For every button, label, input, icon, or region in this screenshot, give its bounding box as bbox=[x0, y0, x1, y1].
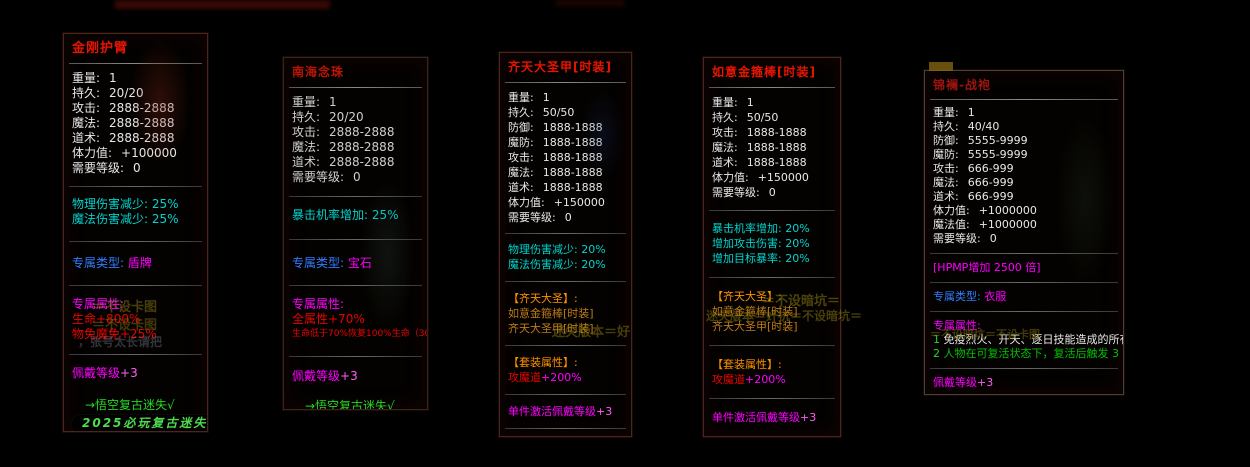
stat-value: +100000 bbox=[121, 146, 177, 160]
divider bbox=[505, 394, 626, 395]
divider bbox=[709, 87, 835, 88]
attr-label: 专属类型: bbox=[72, 256, 128, 270]
attr-value: 人物在可复活状态下，复活后触发 3 秒无敌 bbox=[944, 347, 1125, 360]
background-artifact bbox=[555, 0, 625, 6]
divider bbox=[289, 356, 422, 357]
signature-line: →悟空复古迷失√ bbox=[72, 398, 199, 413]
item-tooltip-ruyi-jingubang: 如意金箍棒[时装]重量:1持久:50/50攻击:1888-1888魔法:1888… bbox=[703, 57, 841, 437]
spacer bbox=[712, 349, 832, 357]
spacer bbox=[508, 385, 623, 391]
spacer bbox=[292, 342, 419, 353]
attr-value: +3 bbox=[977, 376, 993, 389]
item-title: 金刚护臂 bbox=[72, 39, 199, 60]
item-tooltip-nanhai-nianzhu: 南海念珠重量:1持久:20/20攻击:2888-2888魔法:2888-2888… bbox=[283, 57, 428, 410]
stat-value: +150000 bbox=[758, 171, 809, 184]
attr-label: 攻魔道 bbox=[508, 371, 541, 384]
stat-label: 魔法值: bbox=[933, 218, 970, 231]
divider bbox=[69, 241, 202, 242]
divider bbox=[709, 398, 835, 399]
stat-label: 持久: bbox=[933, 120, 959, 133]
set-name-text: 【齐天大圣】: bbox=[508, 292, 578, 305]
spacer bbox=[72, 227, 199, 238]
item-title-text: 齐天大圣甲[时装] bbox=[508, 60, 612, 74]
attr-row: 单件激活佩戴等级+3 bbox=[508, 404, 623, 419]
stat-row: 道术:2888-2888 bbox=[72, 131, 199, 146]
attr-row: 专属类型: 宝石 bbox=[292, 256, 419, 271]
attr-label: 佩戴等级 bbox=[72, 366, 120, 380]
divider bbox=[930, 311, 1118, 312]
item-tooltip-jingang-hubi: 金刚护臂重量:1持久:20/20攻击:2888-2888魔法:2888-2888… bbox=[63, 33, 208, 432]
divider bbox=[709, 277, 835, 278]
spacer bbox=[292, 271, 419, 282]
attr-value: 盾牌 bbox=[128, 256, 152, 270]
attr-line-text: 生命低于70%恢复100%生命（300秒CD） bbox=[292, 329, 428, 339]
stat-value: 2888-2888 bbox=[329, 155, 394, 169]
attr-label: 佩戴等级 bbox=[292, 369, 340, 383]
spacer bbox=[72, 271, 199, 282]
stat-row: 持久:50/50 bbox=[508, 105, 623, 120]
divider bbox=[505, 82, 626, 83]
attr-row: 2 人物在可复活状态下，复活后触发 3 秒无敌 bbox=[933, 347, 1115, 361]
divider bbox=[930, 282, 1118, 283]
stat-label: 持久: bbox=[508, 106, 534, 119]
stat-row: 需要等级:0 bbox=[933, 232, 1115, 246]
stat-row: 魔法:2888-2888 bbox=[292, 140, 419, 155]
attr-value: +3 bbox=[340, 369, 358, 383]
attr-value: +200% bbox=[541, 371, 582, 384]
spacer bbox=[933, 304, 1115, 308]
stat-row: 需要等级:0 bbox=[292, 170, 419, 185]
stat-label: 道术: bbox=[933, 190, 959, 203]
stat-label: 体力值: bbox=[508, 196, 545, 209]
item-title-text: 如意金箍棒[时装] bbox=[712, 65, 816, 79]
divider bbox=[709, 436, 835, 437]
stat-label: 魔法: bbox=[72, 116, 100, 130]
stat-row: 魔法:1888-1888 bbox=[508, 165, 623, 180]
spacer bbox=[72, 190, 199, 197]
attr-line: 全属性+70% bbox=[292, 312, 419, 327]
stat-value: 1 bbox=[543, 91, 550, 104]
stat-label: 魔防: bbox=[933, 148, 959, 161]
stat-label: 防御: bbox=[508, 121, 534, 134]
item-title: 如意金箍棒[时装] bbox=[712, 63, 832, 84]
set-bonus-header: 【套装属性】: bbox=[712, 357, 832, 372]
attr-line-text: 生命+800% bbox=[72, 312, 140, 326]
stat-row: 持久:20/20 bbox=[292, 110, 419, 125]
stat-row: 重量:1 bbox=[72, 71, 199, 86]
stat-row: 需要等级:0 bbox=[72, 161, 199, 176]
attr-line-text: 物理伤害减少: 20% bbox=[508, 243, 606, 256]
signature-pill: 2025必玩复古迷失 ← bbox=[72, 415, 208, 432]
set-name-text: 【齐天大圣】: bbox=[712, 290, 782, 303]
attr-line-text: 增加目标暴率: 20% bbox=[712, 252, 810, 265]
stat-row: 体力值:+150000 bbox=[712, 170, 832, 185]
stat-label: 体力值: bbox=[712, 171, 749, 184]
spacer bbox=[712, 266, 832, 274]
stat-value: 1888-1888 bbox=[543, 166, 603, 179]
stat-value: 0 bbox=[769, 186, 776, 199]
spacer bbox=[292, 243, 419, 256]
stat-value: 1888-1888 bbox=[543, 136, 603, 149]
divider bbox=[69, 285, 202, 286]
attr-line-text: 魔法伤害减少: 25% bbox=[72, 212, 179, 226]
stat-label: 需要等级: bbox=[712, 186, 760, 199]
spacer bbox=[508, 336, 623, 342]
game-screen: 金刚护臂重量:1持久:20/20攻击:2888-2888魔法:2888-2888… bbox=[0, 0, 1250, 467]
stat-row: 防御:5555-9999 bbox=[933, 134, 1115, 148]
divider bbox=[709, 210, 835, 211]
stat-row: 魔法:2888-2888 bbox=[72, 116, 199, 131]
stat-row: 需要等级:0 bbox=[712, 185, 832, 200]
stat-value: 1 bbox=[747, 96, 754, 109]
stat-value: 1888-1888 bbox=[543, 151, 603, 164]
item-title: 齐天大圣甲[时装] bbox=[508, 58, 623, 79]
stat-label: 重量: bbox=[712, 96, 738, 109]
stat-label: 需要等级: bbox=[72, 161, 124, 175]
stat-row: 需要等级:0 bbox=[508, 210, 623, 225]
attr-row: 攻魔道+200% bbox=[712, 372, 832, 387]
stat-value: 666-999 bbox=[968, 176, 1014, 189]
divider bbox=[505, 428, 626, 429]
spacer bbox=[292, 200, 419, 208]
set-bonus-header-text: 【套装属性】: bbox=[712, 358, 782, 371]
item-title: 锦襕-战袍 bbox=[933, 76, 1115, 96]
stat-value: 1 bbox=[109, 71, 117, 85]
signature-line: →悟空复古迷失√ bbox=[292, 399, 419, 410]
attr-line: 专属属性: bbox=[72, 297, 199, 312]
attr-line-text: 魔法伤害减少: 20% bbox=[508, 258, 606, 271]
stat-label: 魔法: bbox=[712, 141, 738, 154]
stat-row: 持久:20/20 bbox=[72, 86, 199, 101]
stat-value: 40/40 bbox=[968, 120, 1000, 133]
stat-label: 重量: bbox=[933, 106, 959, 119]
attr-value: +3 bbox=[596, 405, 612, 418]
attr-line: 生命低于70%恢复100%生命（300秒CD） bbox=[292, 327, 419, 342]
stat-label: 魔法: bbox=[292, 140, 320, 154]
stat-value: 666-999 bbox=[968, 190, 1014, 203]
spacer bbox=[933, 390, 1115, 395]
stat-label: 魔法: bbox=[508, 166, 534, 179]
stat-row: 道术:2888-2888 bbox=[292, 155, 419, 170]
stat-label: 防御: bbox=[933, 134, 959, 147]
attr-label: 攻魔道 bbox=[712, 373, 745, 386]
attr-line-text: 全属性+70% bbox=[292, 312, 365, 326]
spacer bbox=[292, 360, 419, 369]
attr-line-text: 专属属性: bbox=[933, 319, 981, 332]
set-item: 齐天大圣甲[时装] bbox=[508, 321, 623, 336]
attr-line-text: 暴击机率增加: 25% bbox=[292, 208, 399, 222]
divider bbox=[930, 253, 1118, 254]
stat-value: 5555-9999 bbox=[968, 148, 1028, 161]
attr-line: 专属属性: bbox=[292, 297, 419, 312]
signature-line-text: →悟空复古迷失√ bbox=[305, 399, 395, 410]
stat-row: 魔法值:+1000000 bbox=[933, 218, 1115, 232]
spacer bbox=[72, 289, 199, 297]
stat-value: 20/20 bbox=[329, 110, 364, 124]
stat-row: 重量:1 bbox=[712, 95, 832, 110]
stat-value: 0 bbox=[565, 211, 572, 224]
stat-value: 1888-1888 bbox=[747, 156, 807, 169]
set-item: 齐天大圣甲[时装] bbox=[712, 319, 832, 334]
attr-row: 专属类型: 衣服 bbox=[933, 290, 1115, 304]
stat-label: 持久: bbox=[292, 110, 320, 124]
divider bbox=[709, 345, 835, 346]
stat-value: 1888-1888 bbox=[543, 121, 603, 134]
attr-row: 佩戴等级+3 bbox=[72, 366, 199, 381]
attr-label: 专属类型: bbox=[292, 256, 348, 270]
stat-row: 重量:1 bbox=[292, 95, 419, 110]
stat-value: 20/20 bbox=[109, 86, 144, 100]
spacer bbox=[933, 275, 1115, 279]
stat-label: 道术: bbox=[508, 181, 534, 194]
stat-value: 0 bbox=[133, 161, 141, 175]
set-name: 【齐天大圣】: bbox=[508, 291, 623, 306]
stat-label: 攻击: bbox=[933, 162, 959, 175]
attr-line-text: [HPMP增加 2500 倍] bbox=[933, 261, 1041, 274]
stat-value: 2888-2888 bbox=[109, 116, 174, 130]
spacer bbox=[292, 185, 419, 193]
attr-row: 佩戴等级+3 bbox=[292, 369, 419, 384]
stat-value: 1 bbox=[968, 106, 975, 119]
attr-label: 1 bbox=[933, 333, 944, 346]
stat-value: 1888-1888 bbox=[543, 181, 603, 194]
spacer bbox=[292, 223, 419, 236]
spacer bbox=[72, 358, 199, 366]
signature-line-text: →悟空复古迷失√ bbox=[85, 398, 175, 412]
attr-row: 攻魔道+200% bbox=[508, 370, 623, 385]
stat-row: 魔防:5555-9999 bbox=[933, 148, 1115, 162]
stat-label: 道术: bbox=[292, 155, 320, 169]
divider bbox=[69, 63, 202, 64]
stat-label: 需要等级: bbox=[508, 211, 556, 224]
spacer bbox=[72, 342, 199, 351]
attr-line-text: 物理伤害减少: 25% bbox=[72, 197, 179, 211]
attr-line-text: 专属属性: bbox=[72, 297, 124, 311]
attr-row: 专属类型: 盾牌 bbox=[72, 256, 199, 271]
stat-value: 5555-9999 bbox=[968, 134, 1028, 147]
attr-value: 宝石 bbox=[348, 256, 372, 270]
spacer bbox=[292, 384, 419, 399]
attr-row: 单件激活佩戴等级+3 bbox=[712, 410, 832, 425]
set-item-text: 齐天大圣甲[时装] bbox=[712, 320, 798, 333]
spacer bbox=[712, 425, 832, 433]
stat-row: 持久:50/50 bbox=[712, 110, 832, 125]
divider bbox=[505, 345, 626, 346]
stat-label: 持久: bbox=[72, 86, 100, 100]
stat-value: 2888-2888 bbox=[329, 125, 394, 139]
attr-line: 物理伤害减少: 20% bbox=[508, 242, 623, 257]
attr-line: 生命+800% bbox=[72, 312, 199, 327]
set-bonus-header-text: 【套装属性】: bbox=[508, 356, 578, 369]
item-title: 南海念珠 bbox=[292, 63, 419, 84]
stat-label: 道术: bbox=[72, 131, 100, 145]
stat-value: 2888-2888 bbox=[329, 140, 394, 154]
stat-row: 防御:1888-1888 bbox=[508, 120, 623, 135]
stat-value: 1888-1888 bbox=[747, 126, 807, 139]
spacer bbox=[508, 225, 623, 230]
attr-line-text: 暴击机率增加: 20% bbox=[712, 222, 810, 235]
stat-label: 魔防: bbox=[508, 136, 534, 149]
stat-value: 1888-1888 bbox=[747, 141, 807, 154]
set-bonus-header: 【套装属性】: bbox=[508, 355, 623, 370]
attr-line: 物理伤害减少: 25% bbox=[72, 197, 199, 212]
divider bbox=[289, 239, 422, 240]
stat-value: 2888-2888 bbox=[109, 101, 174, 115]
item-title-text: 南海念珠 bbox=[292, 65, 344, 79]
stat-row: 持久:40/40 bbox=[933, 120, 1115, 134]
spacer bbox=[712, 214, 832, 221]
attr-value: 衣服 bbox=[984, 290, 1006, 303]
divider bbox=[289, 196, 422, 197]
attr-line: [HPMP增加 2500 倍] bbox=[933, 261, 1115, 275]
divider bbox=[289, 285, 422, 286]
background-artifact bbox=[115, 0, 330, 9]
attr-line-text: 物免魔免+25% bbox=[72, 327, 157, 341]
stat-label: 重量: bbox=[508, 91, 534, 104]
stat-label: 魔法: bbox=[933, 176, 959, 189]
stat-row: 道术:666-999 bbox=[933, 190, 1115, 204]
divider bbox=[69, 186, 202, 187]
stat-label: 攻击: bbox=[508, 151, 534, 164]
stat-label: 体力值: bbox=[933, 204, 970, 217]
stat-label: 体力值: bbox=[72, 146, 112, 160]
stat-label: 需要等级: bbox=[933, 232, 981, 245]
stat-row: 道术:1888-1888 bbox=[508, 180, 623, 195]
set-item-text: 如意金箍棒[时装] bbox=[712, 305, 798, 318]
set-name: 【齐天大圣】: bbox=[712, 289, 832, 304]
stat-label: 重量: bbox=[72, 71, 100, 85]
attr-line-text: 专属属性: bbox=[292, 297, 344, 311]
stat-row: 攻击:2888-2888 bbox=[292, 125, 419, 140]
stat-label: 攻击: bbox=[712, 126, 738, 139]
divider bbox=[289, 87, 422, 88]
attr-line: 专属属性: bbox=[933, 319, 1115, 333]
stat-label: 需要等级: bbox=[292, 170, 344, 184]
spacer bbox=[72, 245, 199, 256]
signature-row: 2025必玩复古迷失 ← bbox=[72, 413, 199, 432]
spacer bbox=[933, 246, 1115, 250]
item-title-text: 金刚护臂 bbox=[72, 41, 128, 56]
spacer bbox=[72, 381, 199, 398]
attr-value: +3 bbox=[120, 366, 138, 380]
stat-value: +1000000 bbox=[979, 218, 1037, 231]
item-title-text: 锦襕-战袍 bbox=[933, 78, 991, 92]
stat-row: 攻击:666-999 bbox=[933, 162, 1115, 176]
spacer bbox=[712, 387, 832, 395]
divider bbox=[930, 368, 1118, 369]
attr-label: 佩戴等级 bbox=[933, 376, 977, 389]
spacer bbox=[508, 272, 623, 278]
stat-value: +1000000 bbox=[979, 204, 1037, 217]
stat-value: 0 bbox=[353, 170, 361, 184]
stat-row: 攻击:1888-1888 bbox=[712, 125, 832, 140]
item-tooltip-qitian-dasheng-jia: 齐天大圣甲[时装]重量:1持久:50/50防御:1888-1888魔防:1888… bbox=[499, 52, 632, 437]
stat-value: 2888-2888 bbox=[109, 131, 174, 145]
stat-value: 0 bbox=[990, 232, 997, 245]
stat-label: 持久: bbox=[712, 111, 738, 124]
stat-value: 666-999 bbox=[968, 162, 1014, 175]
stat-label: 攻击: bbox=[72, 101, 100, 115]
stat-row: 魔法:1888-1888 bbox=[712, 140, 832, 155]
stat-label: 道术: bbox=[712, 156, 738, 169]
stat-row: 魔防:1888-1888 bbox=[508, 135, 623, 150]
stat-row: 体力值:+1000000 bbox=[933, 204, 1115, 218]
set-item-text: 齐天大圣甲[时装] bbox=[508, 322, 594, 335]
stat-row: 攻击:1888-1888 bbox=[508, 150, 623, 165]
attr-label: 专属类型: bbox=[933, 290, 984, 303]
attr-line: 增加攻击伤害: 20% bbox=[712, 236, 832, 251]
stat-row: 体力值:+100000 bbox=[72, 146, 199, 161]
divider bbox=[69, 354, 202, 355]
stat-label: 重量: bbox=[292, 95, 320, 109]
attr-line: 暴击机率增加: 25% bbox=[292, 208, 419, 223]
attr-label: 单件激活佩戴等级 bbox=[712, 411, 800, 424]
spacer bbox=[933, 361, 1115, 365]
stat-value: 50/50 bbox=[543, 106, 575, 119]
stat-value: 1 bbox=[329, 95, 337, 109]
spacer bbox=[508, 432, 623, 437]
attr-value: 免疫烈火、开天、逐日技能造成的所有伤害 bbox=[944, 333, 1125, 346]
divider bbox=[505, 233, 626, 234]
spacer bbox=[712, 402, 832, 410]
spacer bbox=[72, 176, 199, 183]
attr-row: 佩戴等级+3 bbox=[933, 376, 1115, 390]
spacer bbox=[712, 200, 832, 207]
spacer bbox=[292, 289, 419, 297]
stat-row: 攻击:2888-2888 bbox=[72, 101, 199, 116]
stat-row: 重量:1 bbox=[508, 90, 623, 105]
item-tooltip-jinlan-zhanpao: 锦襕-战袍重量:1持久:40/40防御:5555-9999魔防:5555-999… bbox=[924, 70, 1124, 395]
attr-line: 增加目标暴率: 20% bbox=[712, 251, 832, 266]
attr-line: 暴击机率增加: 20% bbox=[712, 221, 832, 236]
divider bbox=[930, 99, 1118, 100]
attr-label: 2 bbox=[933, 347, 944, 360]
attr-value: +3 bbox=[800, 411, 816, 424]
stat-row: 体力值:+150000 bbox=[508, 195, 623, 210]
attr-line: 魔法伤害减少: 25% bbox=[72, 212, 199, 227]
attr-row: 1 免疫烈火、开天、逐日技能造成的所有伤害 bbox=[933, 333, 1115, 347]
stat-row: 重量:1 bbox=[933, 106, 1115, 120]
spacer bbox=[712, 334, 832, 342]
attr-label: 单件激活佩戴等级 bbox=[508, 405, 596, 418]
stat-label: 攻击: bbox=[292, 125, 320, 139]
stat-value: 50/50 bbox=[747, 111, 779, 124]
attr-line-text: 增加攻击伤害: 20% bbox=[712, 237, 810, 250]
stat-row: 道术:1888-1888 bbox=[712, 155, 832, 170]
spacer bbox=[712, 281, 832, 289]
set-item-text: 如意金箍棒[时装] bbox=[508, 307, 594, 320]
attr-line: 魔法伤害减少: 20% bbox=[508, 257, 623, 272]
divider bbox=[505, 281, 626, 282]
spacer bbox=[508, 419, 623, 425]
stat-value: +150000 bbox=[554, 196, 605, 209]
attr-value: +200% bbox=[745, 373, 786, 386]
stat-row: 魔法:666-999 bbox=[933, 176, 1115, 190]
set-item: 如意金箍棒[时装] bbox=[712, 304, 832, 319]
set-item: 如意金箍棒[时装] bbox=[508, 306, 623, 321]
attr-line: 物免魔免+25% bbox=[72, 327, 199, 342]
